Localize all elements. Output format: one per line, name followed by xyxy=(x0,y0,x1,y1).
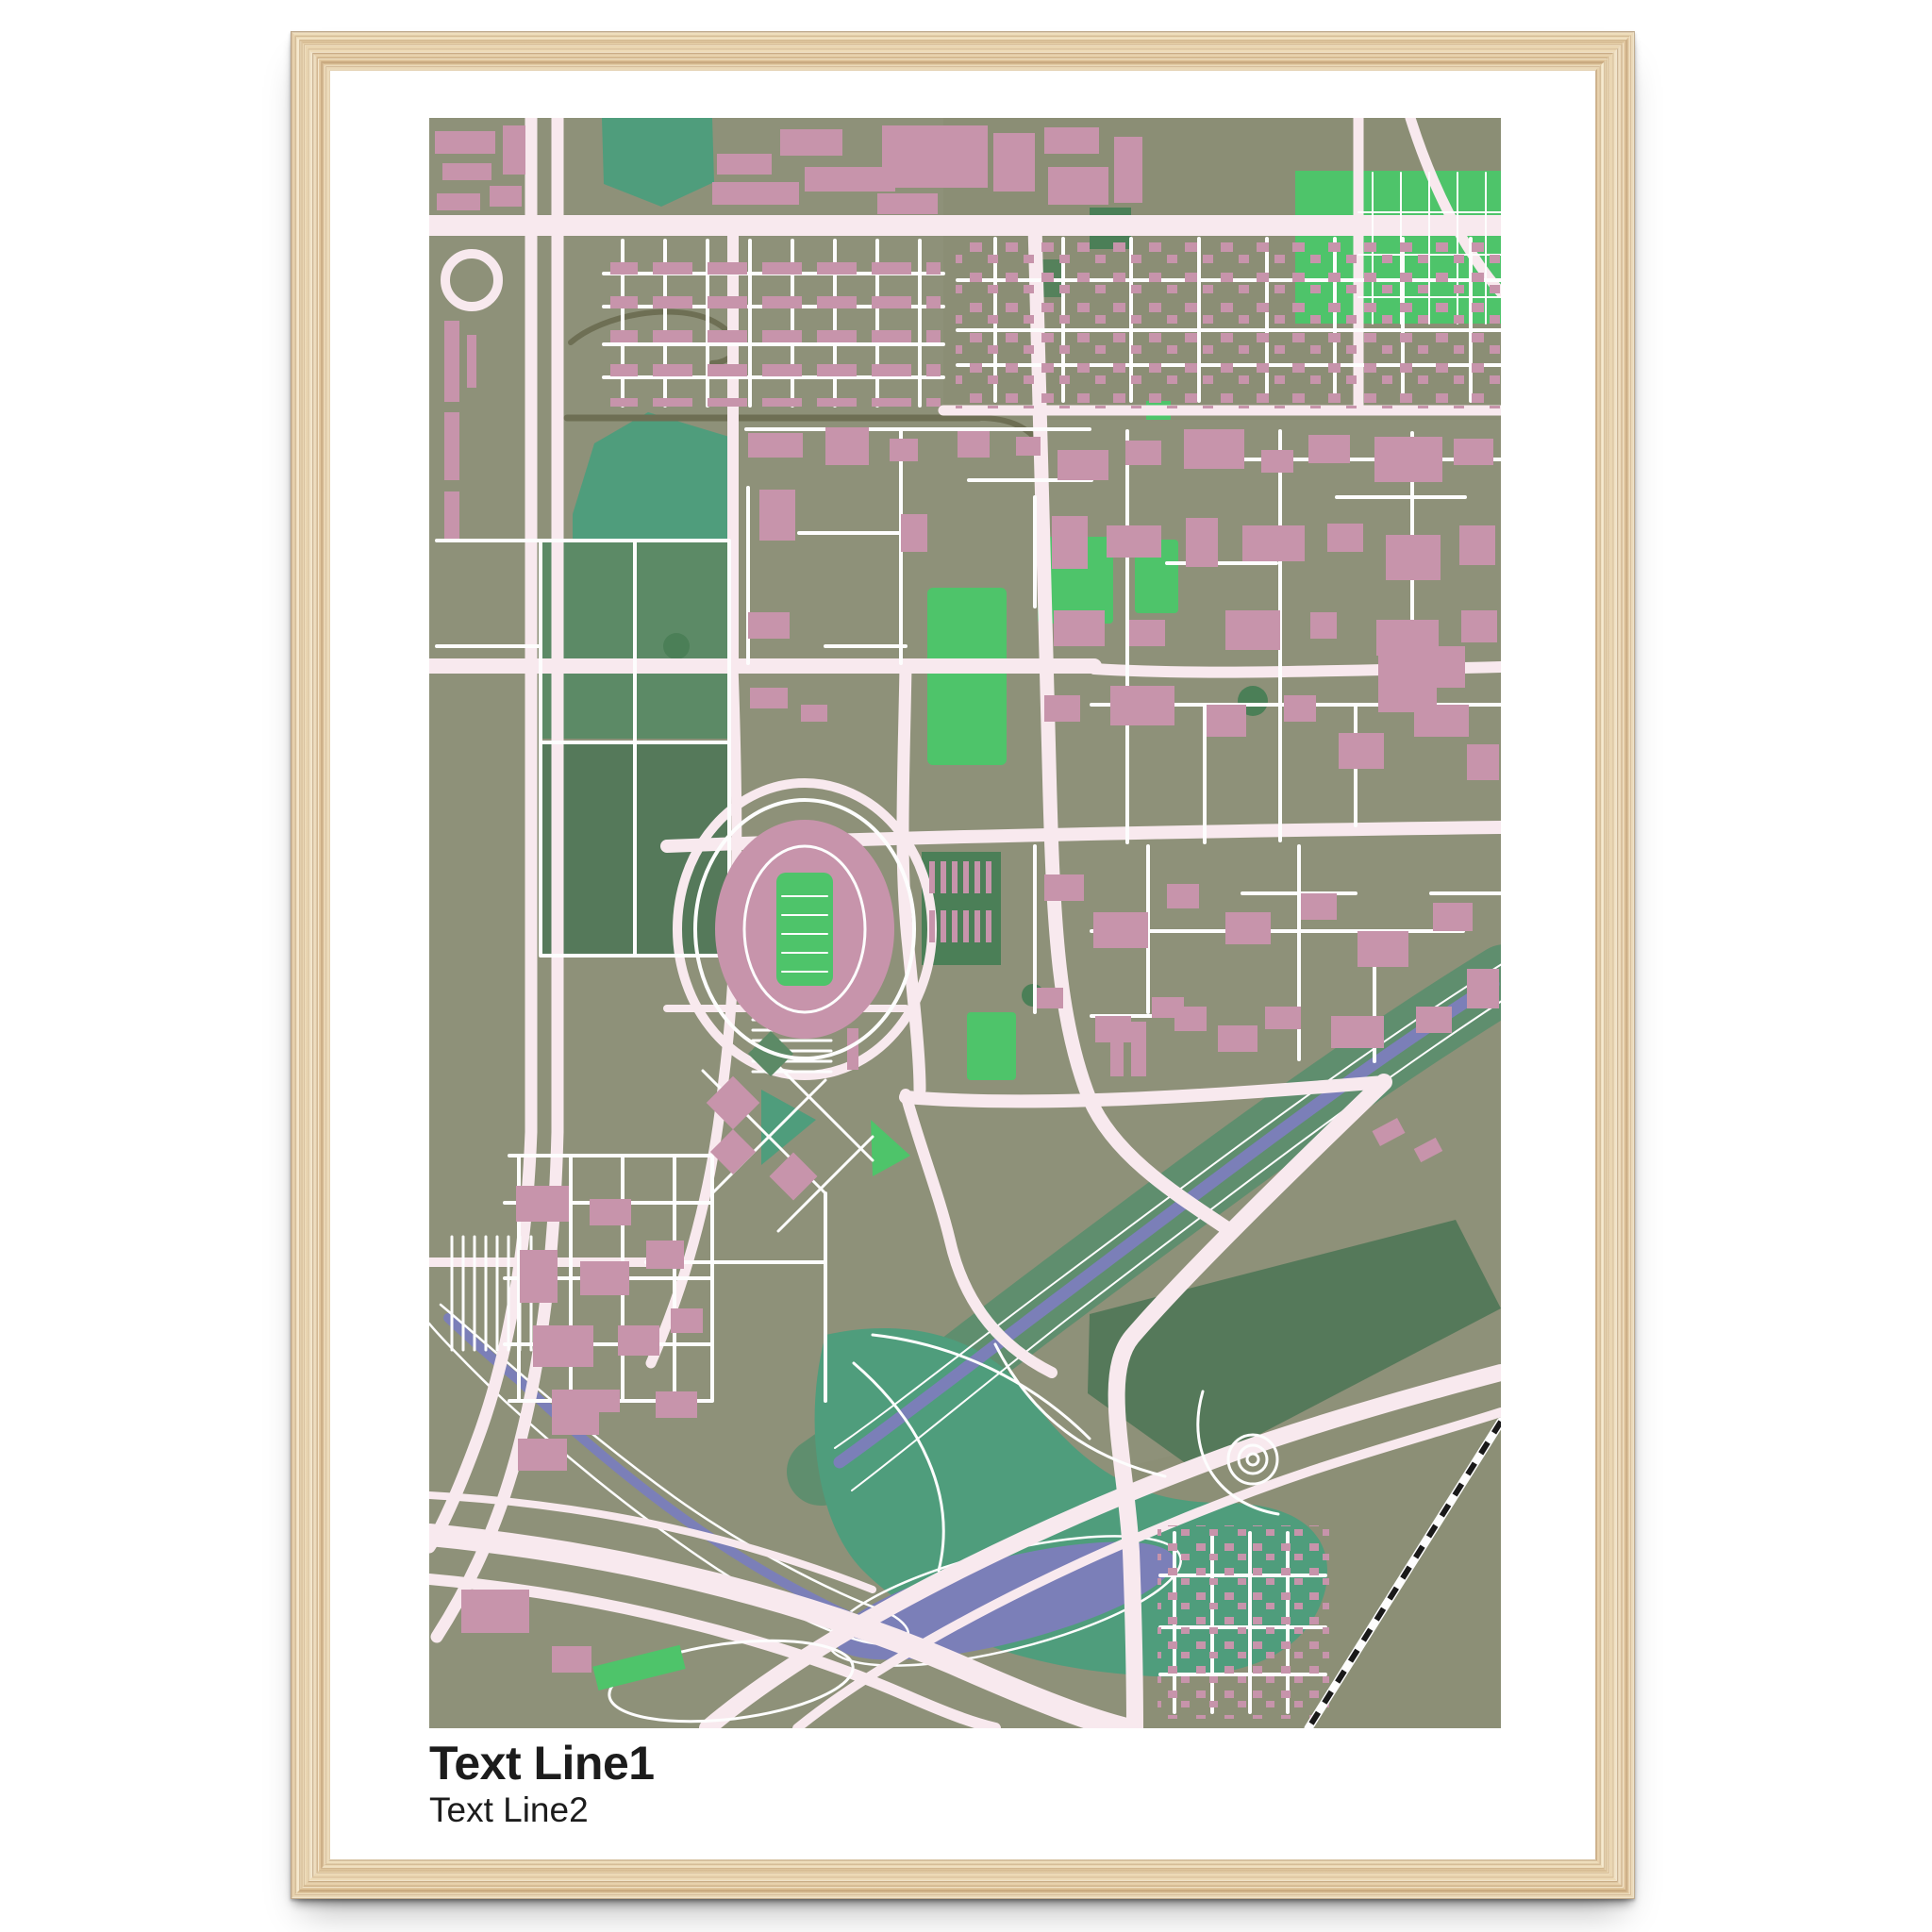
poster-subtitle: Text Line2 xyxy=(429,1792,655,1829)
poster-frame: Text Line1 Text Line2 xyxy=(291,31,1635,1899)
frame-rail-top xyxy=(291,31,1635,71)
frame-rail-left xyxy=(291,31,330,1899)
stadium-shape xyxy=(695,800,914,1058)
frame-rail-right xyxy=(1595,31,1635,1899)
map-print xyxy=(429,118,1501,1728)
frame-rail-bottom xyxy=(291,1859,1635,1899)
poster-caption: Text Line1 Text Line2 xyxy=(429,1739,655,1829)
poster-mat: Text Line1 Text Line2 xyxy=(330,71,1595,1859)
map-graphic xyxy=(429,118,1501,1728)
poster-title: Text Line1 xyxy=(429,1739,655,1789)
